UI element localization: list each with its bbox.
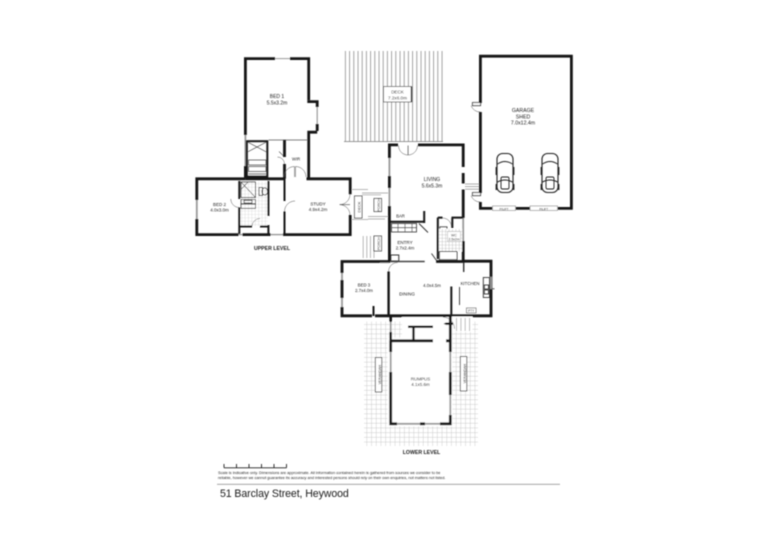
svg-text:PORCH: PORCH xyxy=(377,237,381,250)
svg-text:GARAGE: GARAGE xyxy=(512,108,535,114)
svg-text:7.2x6.0m: 7.2x6.0m xyxy=(388,95,407,100)
svg-text:2.7x4.0m: 2.7x4.0m xyxy=(355,288,373,293)
svg-text:BED 2: BED 2 xyxy=(213,202,227,207)
svg-text:4.9x4.2m: 4.9x4.2m xyxy=(309,207,328,212)
svg-text:P/LIFT: P/LIFT xyxy=(539,207,548,211)
svg-text:DINING: DINING xyxy=(399,292,415,297)
svg-text:SHED: SHED xyxy=(516,114,531,120)
svg-text:LIVING: LIVING xyxy=(424,177,441,183)
svg-text:7.0x12.4m: 7.0x12.4m xyxy=(511,121,535,127)
svg-text:DECK: DECK xyxy=(357,201,362,212)
svg-text:4.0x3.0m: 4.0x3.0m xyxy=(210,208,229,213)
svg-text:VERANDAH: VERANDAH xyxy=(463,364,467,384)
svg-text:51 Barclay Street, Heywood: 51 Barclay Street, Heywood xyxy=(220,488,349,500)
svg-text:UPPER LEVEL: UPPER LEVEL xyxy=(254,246,291,252)
svg-text:BED 3: BED 3 xyxy=(358,282,371,287)
svg-text:LOWER LEVEL: LOWER LEVEL xyxy=(403,450,441,456)
svg-text:5.6x5.3m: 5.6x5.3m xyxy=(422,184,443,190)
svg-text:WIR: WIR xyxy=(292,157,300,162)
svg-text:2.5x2m: 2.5x2m xyxy=(448,237,459,241)
svg-text:ENTRY: ENTRY xyxy=(397,240,412,245)
svg-text:RUMPUS: RUMPUS xyxy=(411,376,431,381)
svg-text:KITCHEN: KITCHEN xyxy=(461,281,480,286)
svg-text:PORCH: PORCH xyxy=(377,198,381,211)
svg-text:reliable, however we cannot gu: reliable, however we cannot guarantee it… xyxy=(218,475,446,480)
svg-text:BAR: BAR xyxy=(396,213,405,218)
svg-text:4.0x4.5m: 4.0x4.5m xyxy=(423,283,441,288)
svg-text:4.1x5.6m: 4.1x5.6m xyxy=(411,382,430,387)
svg-text:DECK: DECK xyxy=(391,90,405,95)
svg-text:P/LIFT: P/LIFT xyxy=(499,207,508,211)
svg-text:5.5x3.2m: 5.5x3.2m xyxy=(267,100,288,106)
svg-text:STUDY: STUDY xyxy=(310,201,325,206)
svg-text:BED 1: BED 1 xyxy=(270,94,285,100)
svg-text:2.7x2.4m: 2.7x2.4m xyxy=(396,246,415,251)
svg-text:PTY: PTY xyxy=(468,309,475,313)
svg-text:VERANDAH: VERANDAH xyxy=(378,365,382,385)
